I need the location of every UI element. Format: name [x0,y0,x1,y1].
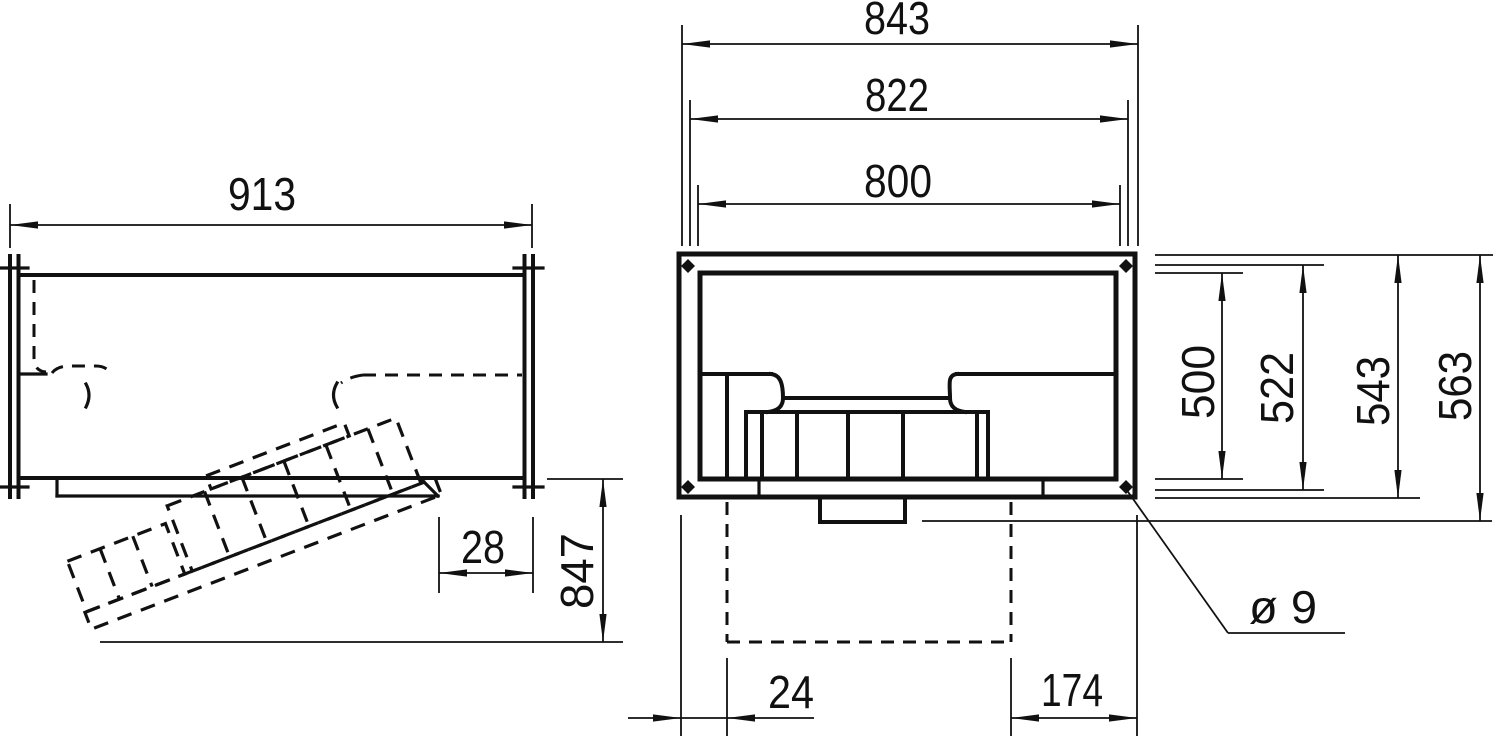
dim-hole-diameter: ø 9 [1126,489,1345,633]
bolt-hole-icon [1119,480,1133,494]
dim-label-800: 800 [864,155,932,207]
dim-label-hole-diameter: ø 9 [1249,581,1317,633]
dim-label-843: 843 [864,0,930,44]
dim-847: 847 [100,479,623,642]
front-bottom-details [759,479,1043,522]
side-swingout-module [55,400,442,630]
drawing-sheet: 913 28 847 843 822 [0,0,1500,738]
dimensions: 913 28 847 843 822 [10,0,1493,736]
dim-label-28: 28 [461,521,505,573]
bolt-hole-icon [681,259,695,273]
technical-drawing: 913 28 847 843 822 [0,0,1500,738]
dim-24: 24 [628,515,814,736]
side-hidden-inlet [19,280,522,407]
front-motor-assembly [700,374,1116,479]
dim-913: 913 [10,168,532,248]
dim-label-543: 543 [1347,356,1399,426]
front-view [679,254,1135,642]
bolt-hole-icon [681,480,695,494]
dim-28: 28 [439,517,533,593]
corner-bolt-holes [681,259,1133,494]
dim-label-913: 913 [228,168,296,220]
side-casing [19,275,524,478]
bolt-hole-icon [1119,259,1133,273]
dim-label-563: 563 [1429,351,1481,421]
side-bottom-rail [57,478,438,496]
dim-label-522: 522 [1251,352,1303,424]
dim-500: 500 [1155,273,1243,479]
dim-label-174: 174 [1041,664,1103,716]
dim-label-500: 500 [1172,345,1224,419]
dim-label-24: 24 [768,666,814,718]
dim-label-847: 847 [551,533,603,609]
dim-label-822: 822 [865,69,929,121]
bottom-connector-box [820,497,905,522]
dim-800: 800 [698,155,1120,246]
side-left-flange [0,256,28,497]
dim-174: 174 [1011,515,1137,736]
dim-843: 843 [682,0,1138,246]
